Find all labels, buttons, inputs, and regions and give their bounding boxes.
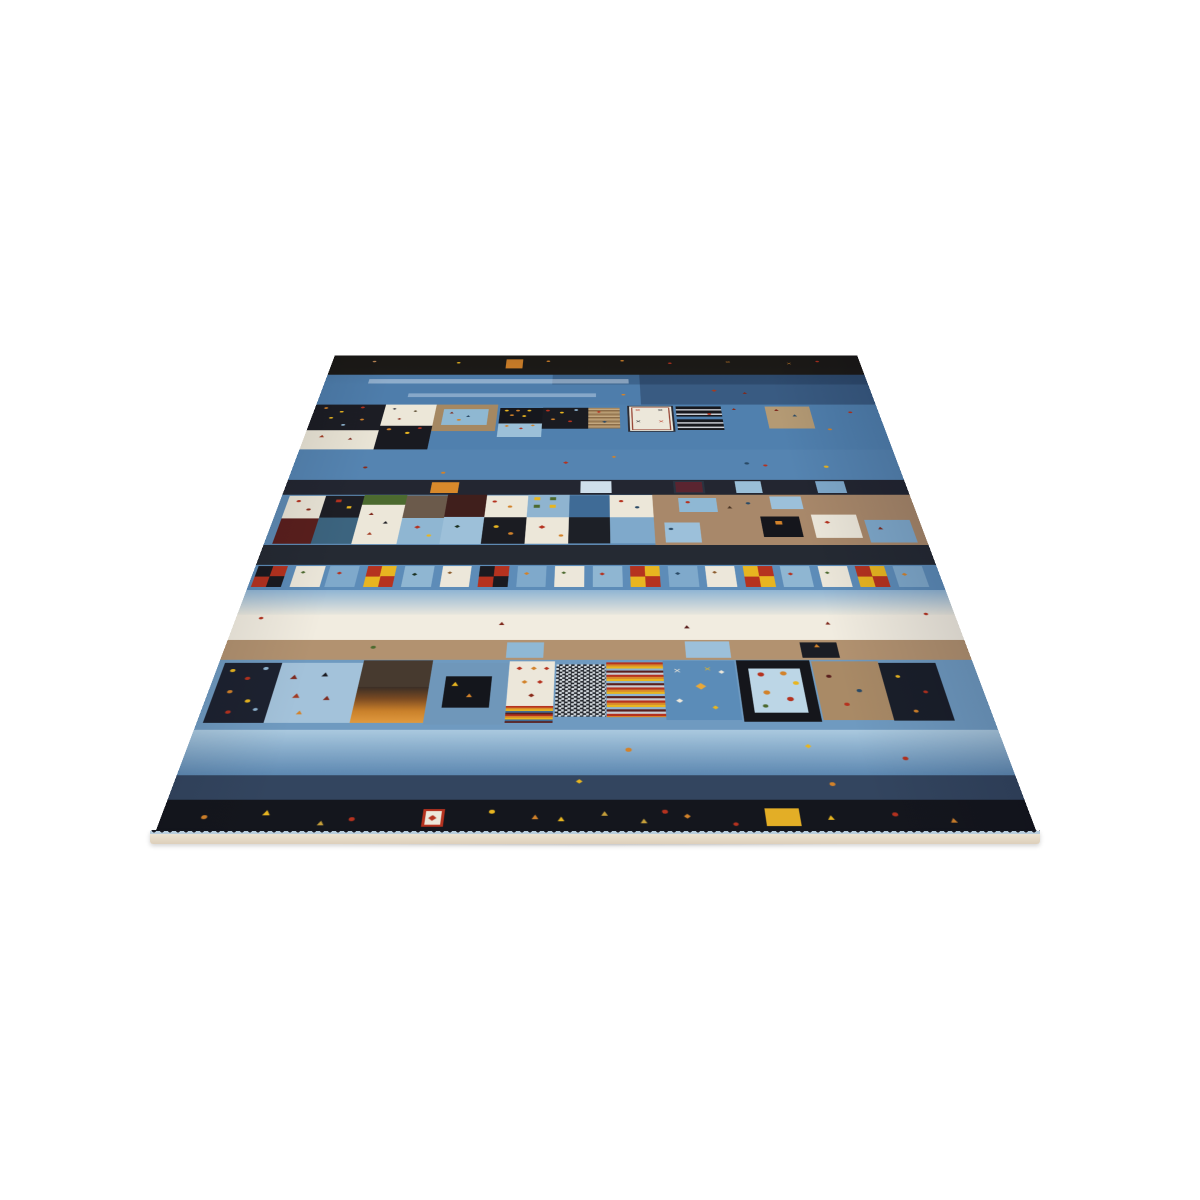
motif: ● (386, 428, 392, 431)
r4-checker (555, 664, 606, 716)
motif: ● (902, 756, 910, 761)
r2-black-2 (568, 517, 610, 543)
motif: ■ (533, 504, 541, 508)
motif: ▲ (949, 817, 958, 823)
acc-ice (580, 481, 611, 493)
r3-w1 (289, 566, 325, 587)
motif: ◆ (528, 693, 534, 698)
sky-ice-streak (368, 379, 629, 383)
r3-b4 (593, 566, 623, 587)
motif: ▲ (450, 411, 454, 413)
motif: ▲ (558, 816, 565, 822)
motif: ▲ (827, 815, 835, 821)
rug-sawtooth-edge (150, 830, 1040, 837)
motif: ● (516, 409, 521, 411)
motif: ▲ (295, 710, 303, 715)
band-fade-blue (237, 590, 955, 615)
motif: ● (296, 500, 302, 503)
r2-tan-lblue-b (769, 497, 803, 509)
motif: ● (792, 681, 800, 686)
band-bottom-border (155, 800, 1037, 833)
motif: ● (456, 362, 461, 364)
band-lower-blue (177, 730, 1016, 776)
motif: ◆ (824, 571, 830, 574)
motif: × (658, 420, 665, 424)
motif: ● (620, 360, 624, 362)
acc-lblue2 (735, 481, 763, 493)
r3-ck3 (478, 566, 510, 587)
motif: ● (324, 407, 329, 409)
r2-lblue-tree (439, 517, 484, 545)
motif: ● (456, 419, 461, 421)
motif: ◆ (561, 571, 566, 574)
motif: ● (546, 409, 551, 411)
motif: ■ (335, 499, 343, 503)
motif: ● (763, 690, 772, 695)
motif: ▲ (877, 526, 883, 529)
motif: ▲ (382, 521, 388, 524)
motif: ▲ (640, 818, 647, 824)
motif: ● (635, 506, 640, 509)
motif: ● (786, 697, 795, 702)
motif: ▲ (774, 409, 779, 412)
motif: ▲ (348, 437, 353, 440)
motif: ● (488, 809, 495, 814)
sky-ice-streak2 (408, 393, 596, 397)
motif: ■ (774, 520, 783, 525)
bb-yellow-block (764, 809, 802, 826)
motif: ▲ (727, 506, 733, 509)
motif: ● (359, 418, 364, 420)
motif: ◆ (519, 427, 523, 429)
r2-white-med (524, 517, 569, 544)
tan-lblue-b (685, 641, 732, 658)
r2-lblue-med (397, 518, 444, 544)
motif: ■ (549, 496, 557, 500)
motif: ◆ (695, 681, 707, 690)
motif: ● (685, 501, 690, 504)
r3-b1 (324, 566, 359, 587)
motif: ● (417, 427, 422, 429)
motif: ◆ (413, 410, 417, 412)
r4-lblue-animals (264, 663, 364, 723)
r2-black-gold (480, 517, 526, 544)
r3-w3 (554, 566, 584, 587)
motif: ● (733, 822, 740, 827)
r2-graybrown (403, 495, 448, 518)
motif: ◆ (454, 525, 460, 529)
motif: × (634, 408, 641, 411)
r4-orange-grad (350, 687, 429, 723)
motif: ● (370, 645, 377, 649)
motif: ▲ (813, 644, 820, 648)
motif: ▲ (825, 621, 831, 625)
motif: ● (815, 361, 820, 363)
r4-brown-speck (358, 660, 433, 686)
motif: ● (707, 413, 712, 415)
r1-white-moths (380, 405, 436, 426)
motif: ▲ (792, 414, 797, 417)
r2-tan-lblue-a (678, 498, 718, 512)
r1-black-motifs (307, 405, 387, 431)
motif: ● (527, 409, 532, 411)
acc-maroon-med (673, 481, 705, 493)
motif: ● (848, 411, 853, 413)
motif: ◆ (336, 571, 342, 575)
motif: ◆ (684, 813, 691, 819)
motif: × (703, 666, 712, 672)
motif: ● (826, 674, 833, 678)
acc-orange (430, 482, 459, 493)
motif: ● (505, 409, 510, 411)
r2-white-2 (484, 495, 528, 517)
motif: ● (508, 532, 514, 535)
r2-white-3 (610, 495, 654, 517)
r2-tan-white (811, 515, 863, 538)
motif: ● (329, 417, 334, 419)
motif: ● (891, 812, 899, 817)
motif: ● (507, 505, 512, 508)
motif: ● (404, 432, 410, 435)
r1-tan-right (764, 407, 815, 429)
motif: ▲ (684, 625, 690, 629)
r3-b2 (401, 566, 435, 587)
motif: ▲ (466, 693, 473, 698)
r3-ck4 (630, 566, 661, 587)
motif: ● (372, 361, 377, 363)
motif: ◆ (711, 389, 717, 392)
motif: ● (619, 500, 624, 503)
motif: ● (762, 704, 769, 708)
motif: ◆ (447, 571, 452, 574)
motif: ▲ (323, 695, 331, 700)
r2-darkmaroon (444, 495, 487, 517)
motif: ● (923, 612, 929, 615)
motif: ● (510, 414, 515, 416)
motif: ◆ (787, 572, 793, 576)
motif: ◆ (538, 525, 545, 530)
motif: ◆ (531, 424, 535, 426)
band-deep-blue (167, 775, 1024, 800)
motif: × (673, 667, 682, 673)
motif: ◆ (718, 670, 725, 675)
motif: ◆ (805, 744, 812, 749)
motif: ◆ (397, 418, 402, 420)
motif: ● (745, 502, 751, 505)
motif: ● (621, 394, 625, 396)
motif: ◆ (612, 455, 617, 458)
motif: ■ (549, 504, 557, 508)
motif: ● (493, 525, 499, 528)
motif: ● (560, 411, 565, 413)
motif: ● (779, 671, 788, 676)
motif: ● (668, 527, 673, 530)
motif: ◆ (428, 813, 437, 820)
r4-stripe-strip (505, 706, 554, 723)
r3-w5 (817, 566, 852, 587)
r1-black-stripe-a (676, 406, 723, 416)
r2-green-strip (362, 495, 407, 505)
motif: × (724, 360, 731, 363)
motif: ■ (346, 506, 352, 509)
motif: ◆ (537, 680, 543, 685)
motif: ● (426, 534, 432, 537)
motif: ◆ (676, 699, 683, 705)
r3-b3 (516, 566, 547, 587)
motif: ● (922, 690, 929, 694)
r3-b6 (780, 566, 814, 587)
motif: ◆ (531, 666, 537, 671)
motif: ◆ (599, 572, 604, 576)
motif: ● (662, 809, 669, 814)
motif: ● (668, 362, 672, 364)
motif: ◆ (563, 461, 568, 464)
motif: ● (763, 464, 768, 467)
motif: ● (558, 534, 563, 537)
r3-b5 (667, 566, 699, 587)
motif: ● (551, 418, 556, 420)
motif: ▲ (731, 408, 736, 411)
r2-blue-2 (569, 495, 610, 517)
r2-tan-blue-d (664, 522, 702, 542)
motif: ● (360, 406, 365, 408)
r3-w2 (439, 566, 472, 587)
motif: ▲ (601, 811, 608, 817)
motif: ◆ (544, 667, 549, 671)
motif: ● (757, 672, 765, 677)
r1-white-animal (299, 430, 379, 449)
r1-black-stripe-b (677, 419, 724, 430)
band-cream (228, 615, 965, 640)
motif: ◆ (521, 680, 527, 685)
rug-product-photo: ●●●●●××●◆●▲●●●●●●▲▲◆◆◆●●●▲▲●●●●●●◆◆◆●●●●… (0, 0, 1200, 1200)
motif: ● (522, 415, 527, 417)
motif: ▲ (367, 532, 373, 535)
rug-flat: ●●●●●××●◆●▲●●●●●●▲▲◆◆◆●●●▲▲●●●●●●◆◆◆●●●●… (155, 355, 1037, 833)
motif: ● (574, 409, 579, 411)
motif: ◆ (576, 778, 583, 784)
motif: ◆ (901, 573, 908, 577)
motif: ◆ (524, 572, 530, 576)
motif: ◆ (411, 573, 417, 577)
motif: ■ (534, 496, 542, 500)
motif: ◆ (597, 411, 601, 414)
motif: ● (827, 428, 832, 430)
motif: ● (844, 702, 851, 706)
r3-ck5 (742, 566, 775, 587)
motif: ▲ (368, 512, 374, 515)
r2-blue-3 (610, 517, 656, 543)
tan-lblue-a (506, 643, 544, 659)
motif: × (657, 408, 664, 411)
band-dark-speckle-2 (256, 545, 936, 565)
motif: ● (441, 471, 446, 474)
motif: ● (546, 360, 550, 362)
motif: ▲ (321, 672, 329, 677)
motif: ▲ (262, 810, 272, 817)
motif: ● (895, 675, 901, 679)
band-tan (220, 640, 972, 660)
band-mid-blue (288, 450, 904, 480)
border-orange-block (506, 359, 524, 368)
r1-tan-stripes (588, 408, 620, 429)
motif: ◆ (712, 705, 719, 710)
r3-ck2 (363, 566, 398, 587)
motif: ● (829, 782, 837, 787)
r3-ck6 (855, 566, 891, 587)
motif: ● (856, 688, 863, 692)
motif: ▲ (316, 820, 324, 826)
motif: ◆ (675, 572, 681, 576)
motif: ▲ (451, 682, 458, 687)
motif: × (635, 420, 642, 424)
motif: ◆ (516, 666, 522, 671)
motif: ◆ (414, 525, 421, 529)
rug-bottom-binding (150, 831, 1040, 844)
r2-tan-blue-c (864, 520, 917, 543)
motif: ● (363, 466, 369, 469)
motif: ● (823, 465, 829, 468)
band-top-border (328, 355, 865, 374)
motif: ◆ (392, 408, 397, 410)
motif: ● (492, 500, 497, 503)
rug: ●●●●●××●◆●▲●●●●●●▲▲◆◆◆●●●▲▲●●●●●●◆◆◆●●●●… (155, 355, 1037, 833)
motif: ● (744, 462, 750, 465)
motif: ◆ (504, 425, 509, 428)
motif: ● (568, 420, 573, 422)
motif: × (785, 362, 792, 365)
motif: ● (348, 817, 356, 822)
r1-black-flowers (374, 426, 432, 450)
motif: ● (625, 747, 632, 752)
r4-multistripes (607, 662, 666, 717)
motif: ▲ (499, 622, 505, 626)
r3-w4 (705, 566, 738, 587)
motif: ● (913, 709, 920, 713)
motif: ◆ (824, 521, 831, 525)
motif: ● (341, 424, 346, 426)
motif: ◆ (712, 570, 717, 573)
motif: ● (306, 508, 312, 511)
acc-blue3 (815, 481, 847, 493)
motif: ▲ (532, 814, 539, 820)
motif: ◆ (602, 421, 607, 424)
motif: ▲ (742, 392, 747, 394)
motif: ● (339, 410, 344, 412)
motif: ▲ (466, 415, 470, 417)
motif: ▲ (319, 435, 325, 438)
